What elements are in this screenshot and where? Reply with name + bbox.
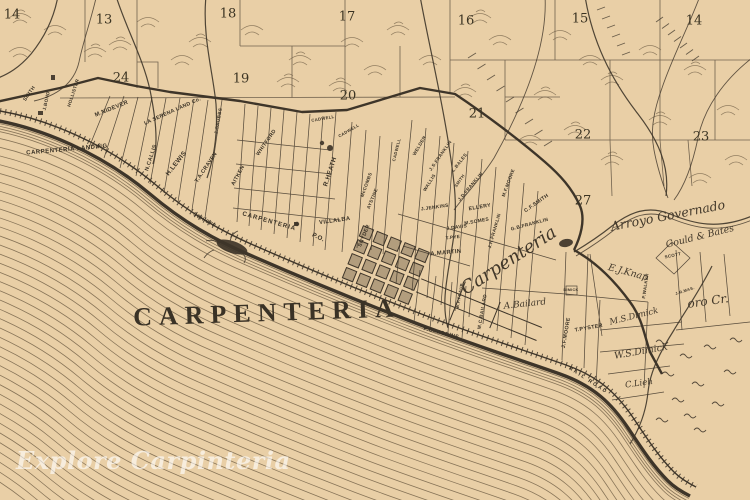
map-label: H.LEWIS (166, 151, 189, 178)
map-label: HOLLISTER (67, 78, 80, 107)
map-label: J.F.MOORE (562, 317, 573, 349)
map-label: J.DAVIS (446, 225, 467, 233)
map-label: WALLIS (423, 174, 437, 193)
map-label: N.CALLIS (145, 144, 159, 172)
map-label: T.PYE (446, 235, 461, 241)
map-label: WELDEN (413, 135, 428, 156)
section-number: 13 (96, 14, 113, 27)
map-label: SNYDER (358, 224, 372, 248)
map-label: M.S.Dimick (609, 307, 659, 327)
map-label: M.SOMES (464, 218, 490, 227)
map-label: AYSTINE (367, 188, 379, 210)
watermark: Explore Carpinteria (16, 446, 291, 475)
map-label: M.NIDEVER (95, 101, 130, 120)
map-label: CARPENTERIA (241, 211, 296, 232)
map-label: oro Cr. (687, 292, 730, 310)
map-label: ELLERY (469, 203, 492, 212)
map-label: L.BALES (451, 153, 468, 173)
section-number: 17 (339, 11, 356, 24)
map-label: Gould & Bates (665, 224, 735, 250)
map-label: J.JENKINS (421, 205, 449, 214)
map-label: CADWELL (392, 138, 402, 162)
map-label: E.J.Knap (607, 263, 649, 283)
map-label: J.R.MAS. (675, 286, 695, 296)
section-number: 19 (233, 73, 250, 86)
map-label: J.H.FRANKLIN (488, 213, 502, 249)
map-label: CARPENTERIA LANDING (26, 143, 108, 156)
map-label: A.Bailard (503, 298, 546, 311)
historic-map-carpenteria: 1413181716151424192021222327SMITHJ.BONDH… (0, 0, 750, 500)
section-number: 27 (575, 195, 592, 208)
section-number: 18 (220, 8, 237, 21)
map-label: CADWELL (311, 115, 335, 123)
map-label: LA SERENA LAND Co. (144, 97, 202, 127)
map-label: Carpenteria (458, 224, 560, 299)
section-number: 14 (4, 9, 21, 22)
map-label: A.MARTIN (430, 250, 462, 258)
map-label: CADWELL (338, 123, 360, 138)
map-label: SCHIOFF (192, 212, 216, 229)
map-label: SMITH (23, 85, 37, 102)
map-label: J.GRUBBS (214, 108, 223, 135)
section-number: 16 (458, 15, 475, 28)
section-number: 22 (575, 129, 592, 142)
map-label: T.A.CRAVEN (195, 152, 219, 184)
map-label: M.C.BAILARD (479, 294, 490, 330)
section-number: 14 (686, 15, 703, 28)
section-number: 15 (572, 13, 589, 26)
section-number: 24 (113, 72, 130, 85)
section-number: 23 (693, 131, 710, 144)
map-label: J.S.FRANKLIN (429, 140, 453, 172)
map-label: VILLALBA (319, 217, 351, 227)
map-label: P.C.HIGGINS (423, 327, 460, 341)
section-number: 21 (469, 108, 486, 121)
map-label: WHITFORD (256, 129, 278, 157)
section-number: 20 (340, 90, 357, 103)
map-label: J.BOND (43, 91, 52, 111)
map-label: AITKEN (231, 165, 246, 187)
map-label: SMITH (454, 174, 466, 189)
map-label: C.Lieh (625, 378, 654, 390)
map-label: RAIL ROAD (567, 366, 608, 395)
map-label: C.F.SMITH (524, 194, 550, 215)
map-label: T.PYSTER (574, 324, 603, 334)
map-label: W.S.Dimick (614, 343, 669, 362)
map-label: R.HEATH (323, 157, 338, 188)
labels-layer: 1413181716151424192021222327SMITHJ.BONDH… (0, 0, 750, 500)
map-label: SCOTT (664, 252, 681, 260)
map-label: DIMICK (564, 289, 579, 293)
map-label: M.F.MOORE (502, 169, 516, 198)
map-label: P.O. (311, 232, 325, 243)
